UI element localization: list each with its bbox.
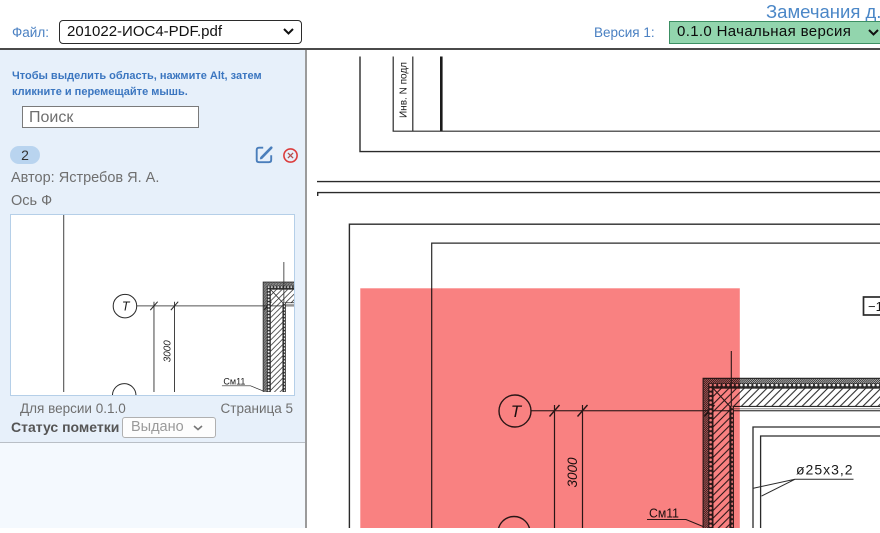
- svg-text:Инв. N подл: Инв. N подл: [399, 62, 410, 118]
